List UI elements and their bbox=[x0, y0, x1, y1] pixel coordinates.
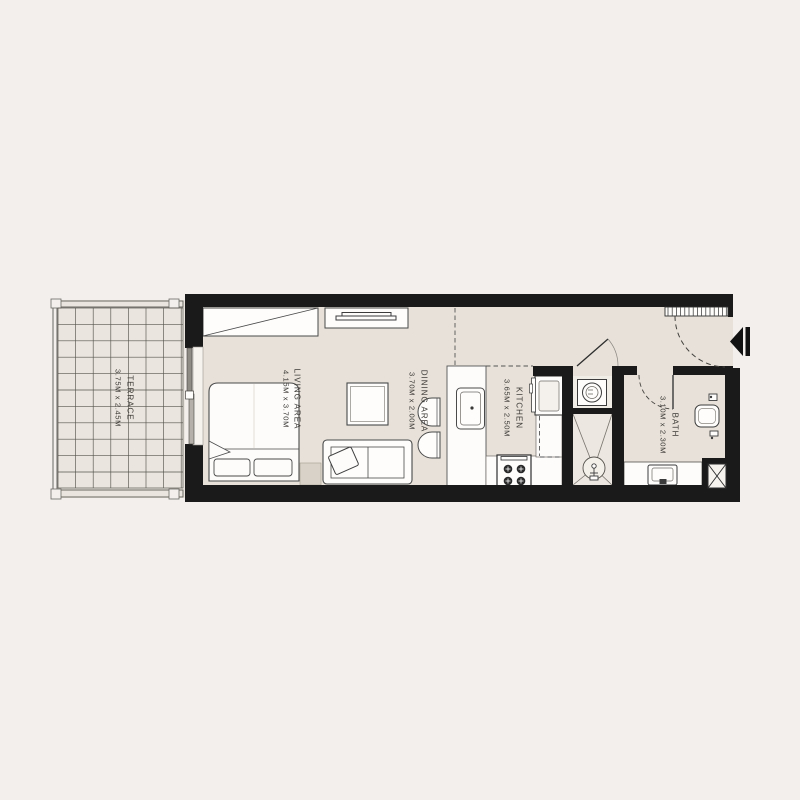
wall-kitchen-closet bbox=[562, 366, 573, 485]
bath-door-gap bbox=[637, 366, 673, 376]
svg-text:3.10M x 2.30M: 3.10M x 2.30M bbox=[659, 396, 668, 454]
faucet bbox=[660, 479, 667, 484]
tv-console bbox=[325, 308, 408, 328]
fridge-door bbox=[532, 378, 536, 412]
kitchen-counter-right bbox=[536, 415, 562, 457]
svg-text:4.15M x 3.70M: 4.15M x 3.70M bbox=[282, 370, 291, 428]
svg-text:DINING AREA: DINING AREA bbox=[420, 370, 429, 433]
svg-text:TERRACE: TERRACE bbox=[126, 375, 135, 420]
svg-text:BATH: BATH bbox=[671, 413, 680, 438]
wall-top bbox=[185, 294, 733, 307]
fridge bbox=[530, 376, 564, 415]
svg-text:KITCHEN: KITCHEN bbox=[515, 387, 524, 429]
pillow bbox=[214, 459, 250, 476]
bedside-table bbox=[300, 463, 321, 485]
kitchen-island bbox=[447, 366, 486, 487]
wall-fridge-stub bbox=[533, 366, 573, 376]
floorplan-page: TERRACE 3.75M x 2.45M LIVING AREA 4.15M … bbox=[0, 0, 800, 800]
floorplan-drawing: TERRACE 3.75M x 2.45M LIVING AREA 4.15M … bbox=[0, 0, 800, 800]
tv-base bbox=[336, 316, 396, 320]
svg-text:3.65M x 2.50M: 3.65M x 2.50M bbox=[503, 379, 512, 437]
terrace-railing-left bbox=[53, 301, 57, 497]
railing-post bbox=[169, 489, 179, 499]
door-handle bbox=[186, 391, 194, 399]
wall-entry-corner bbox=[728, 307, 733, 317]
washer-closet bbox=[573, 376, 612, 408]
wardrobe bbox=[203, 308, 318, 336]
fridge-handle bbox=[530, 384, 533, 393]
sofa bbox=[323, 440, 412, 484]
svg-text:LIVING AREA: LIVING AREA bbox=[293, 369, 302, 430]
shower bbox=[573, 414, 612, 485]
stove-handle bbox=[501, 457, 527, 461]
stove bbox=[497, 455, 531, 488]
wall-closet-bath bbox=[612, 366, 624, 485]
wall-bottom bbox=[185, 485, 740, 502]
toilet-paper-holder bbox=[710, 431, 718, 436]
railing-post bbox=[51, 489, 61, 499]
sliding-door bbox=[186, 347, 204, 445]
pillow bbox=[254, 459, 292, 476]
svg-text:3.75M x 2.45M: 3.75M x 2.45M bbox=[114, 369, 123, 427]
wall-left-upper bbox=[185, 294, 203, 348]
railing-post bbox=[51, 299, 61, 308]
wall-closet-shower-divider bbox=[573, 408, 612, 414]
shaft bbox=[708, 464, 726, 488]
svg-text:3.70M x 2.00M: 3.70M x 2.00M bbox=[408, 372, 417, 430]
wall-bath-top-left bbox=[624, 366, 637, 375]
coffee-table bbox=[347, 383, 388, 425]
railing-post bbox=[169, 299, 179, 308]
kitchen-sink-icon bbox=[457, 388, 485, 429]
